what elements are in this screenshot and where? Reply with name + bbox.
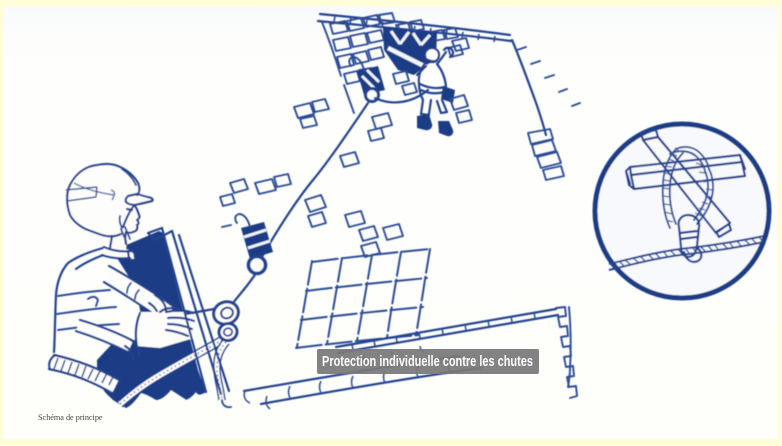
svg-text:Schéma de principe: Schéma de principe (38, 413, 103, 422)
svg-text:Protection individuelle contre: Protection individuelle contre les chute… (322, 354, 533, 370)
